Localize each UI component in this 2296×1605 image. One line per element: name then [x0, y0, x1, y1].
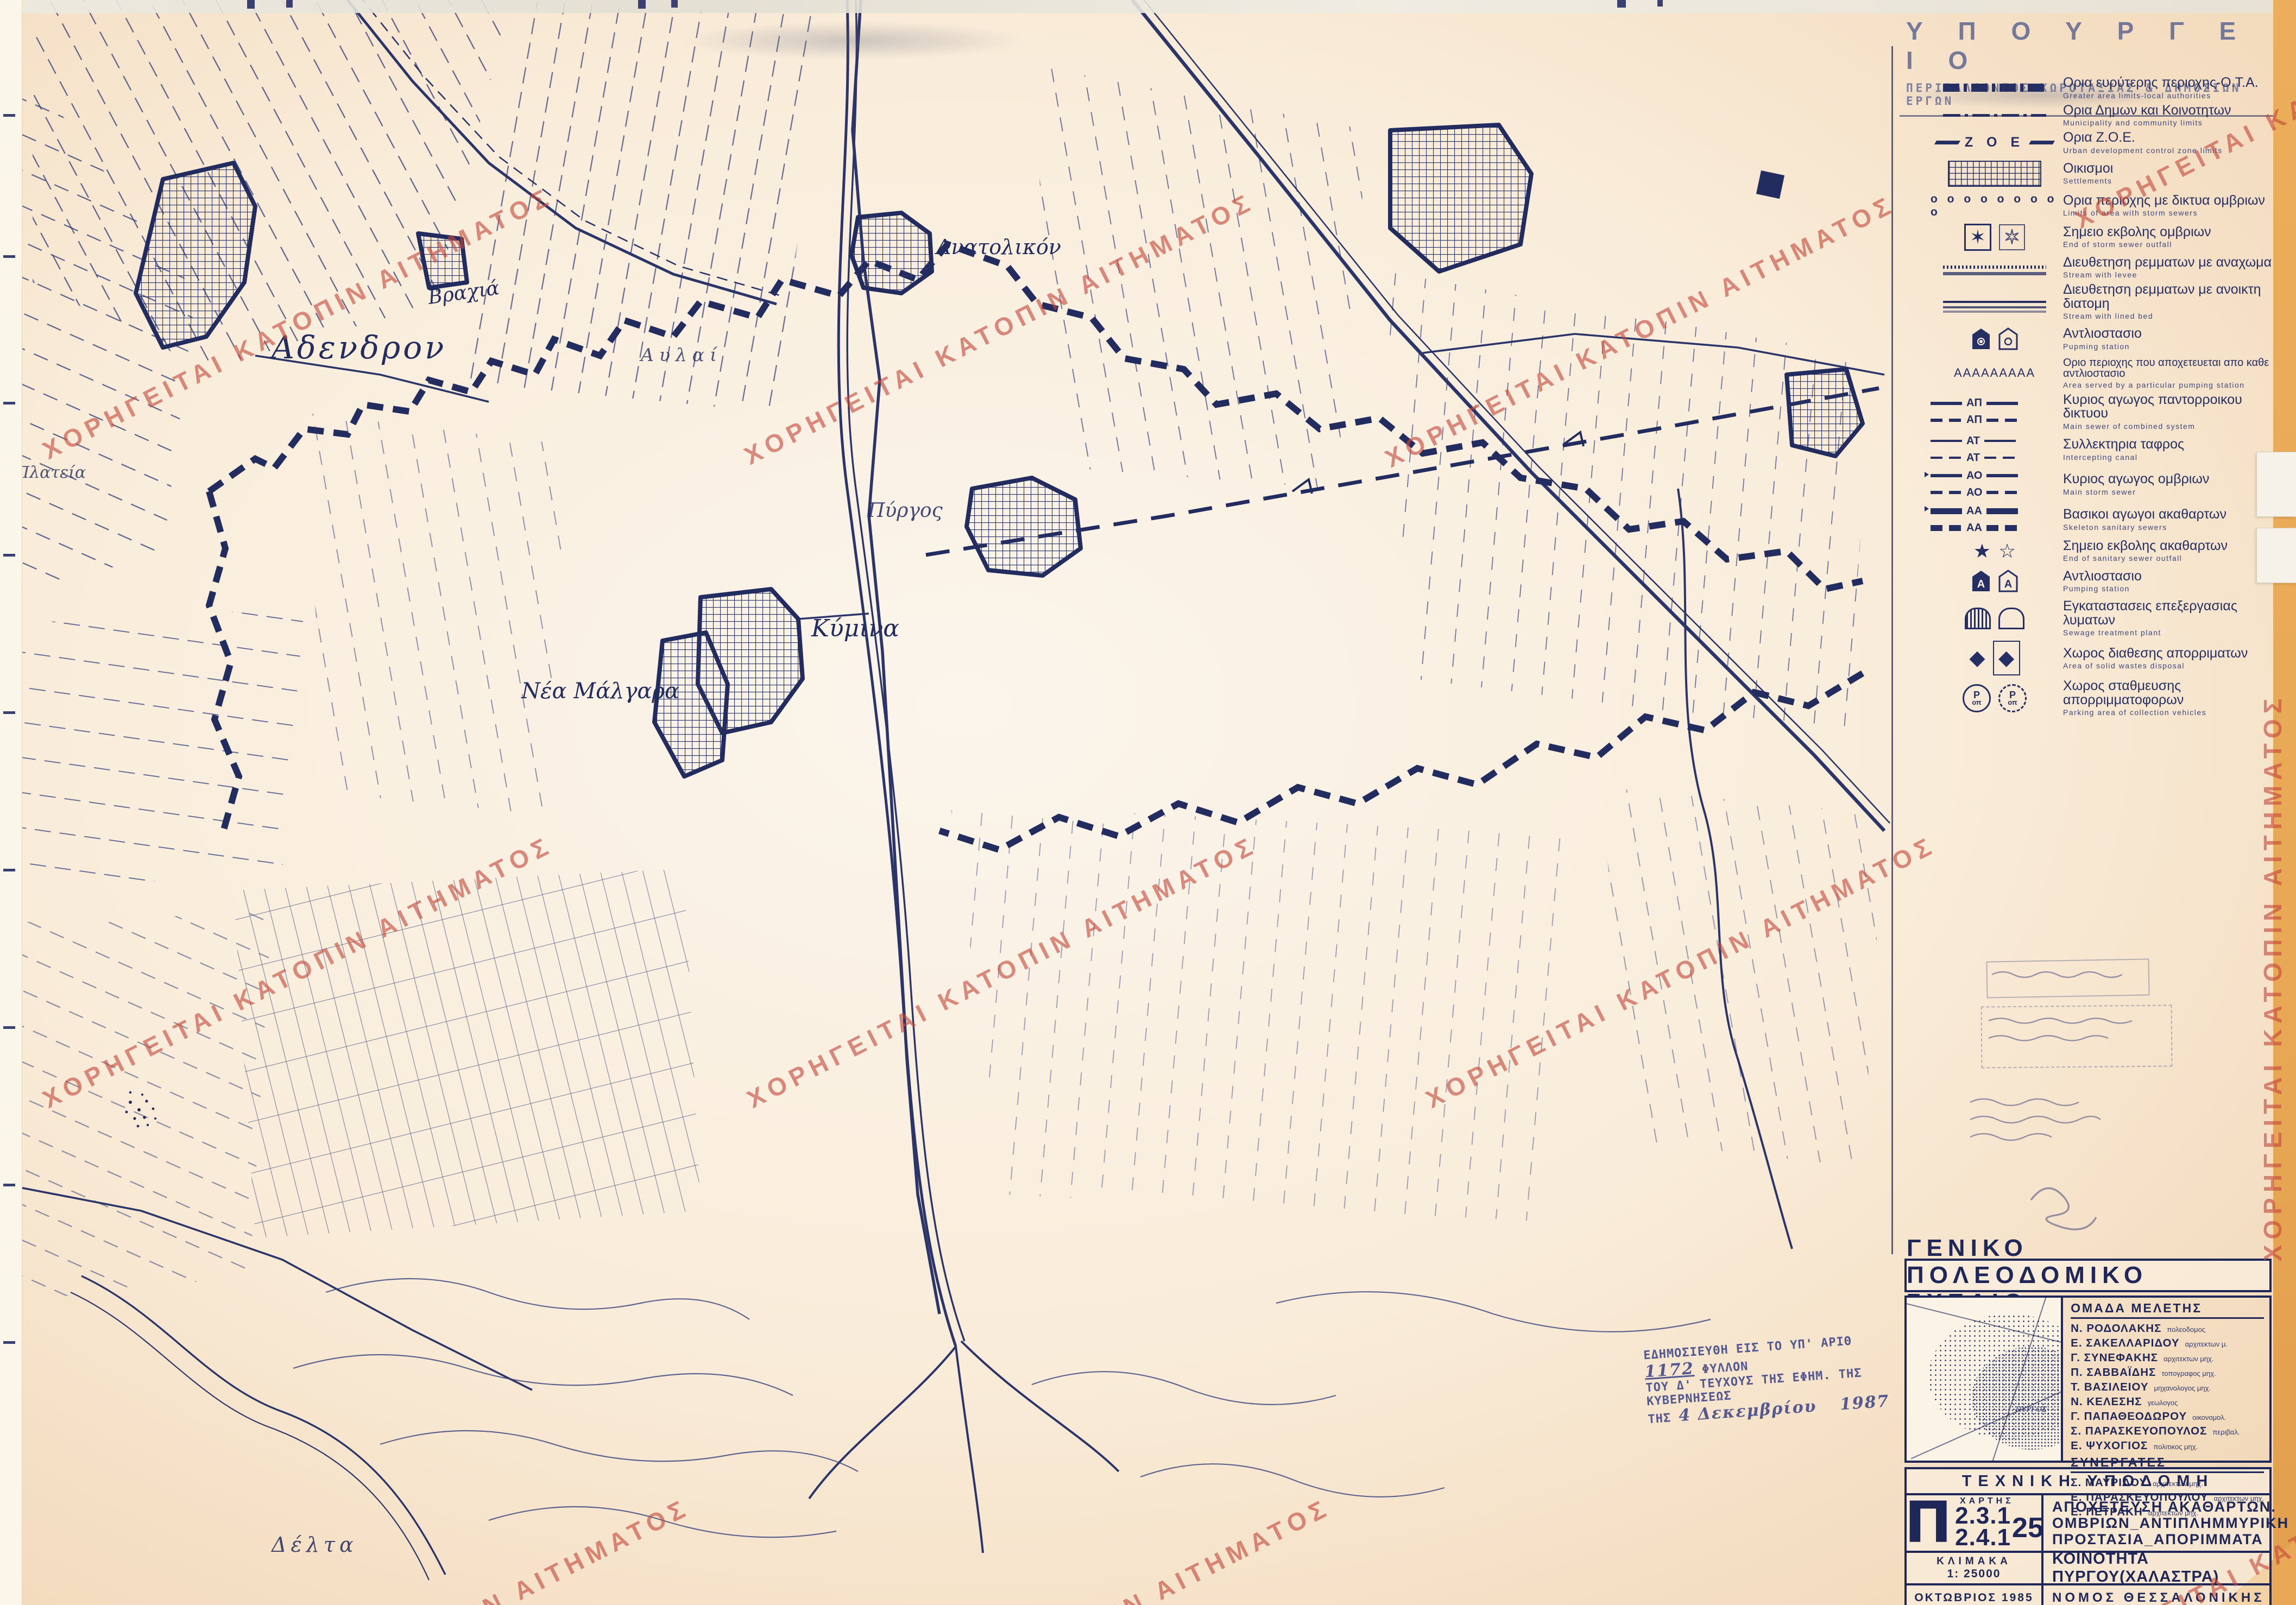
pump-service-area-symbol: ΑΑΑΑΑΑΑΑΑ: [1931, 366, 2059, 380]
legend-item: Ροπ Ροπ Χωρος σταθμευσης απορριμματοφορω…: [1931, 679, 2278, 717]
margin-tick: [3, 554, 15, 557]
legend-sublabel: Pumping station: [2063, 584, 2278, 593]
scan-left-margin: [0, 0, 22, 1605]
binding-mark: [1657, 0, 1663, 7]
team-member: Γ. ΣΥΝΕΦΑΚΗΣαρχιτεκτων μηχ.: [2071, 1351, 2264, 1364]
watermark-text: ΧΟΡΗΓΕΙΤΑΙ ΚΑΤΟΠΙΝ ΑΙΤΗΜΑΤΟΣ: [2258, 693, 2287, 1262]
combined-sewer-symbol: ΑΠ ΑΠ: [1931, 397, 2059, 426]
pumping-station-symbol: [1931, 327, 2059, 350]
margin-tick: [3, 1341, 15, 1344]
subject-cell: ΑΠΟΧΕΤΕΥΣΗ ΑΚΑΘΑΡΤΩΝ. ΟΜΒΡΙΩΝ_ΑΝΤΙΠΛΗΜΜΥ…: [2043, 1495, 2289, 1551]
legend-label: Χωρος σταθμευσης απορριμματοφορων: [2063, 679, 2278, 707]
legend-sublabel: Intercepting canal: [2063, 453, 2278, 462]
legend-sublabel: End of storm sewer outfall: [2063, 240, 2278, 249]
team-header: ΟΜΑΔΑ ΜΕΛΕΤΗΣ: [2071, 1301, 2264, 1319]
storm-sewer-area-symbol: o o o o o o o o o: [1931, 193, 2059, 219]
map-label-nea-malgara: Νέα Μάλγαρα: [521, 679, 679, 704]
scanned-map-sheet: Αδενδρον Αυλαί Βραχιά Ανατολικόν Πύργος …: [0, 0, 2296, 1605]
legend-item: A A Αντλιοστασιο Pumping station: [1931, 566, 2278, 596]
settlements-symbol: [1931, 161, 2059, 187]
pumping-station-a-symbol: A A: [1931, 570, 2059, 592]
legend-label: Χωρος διαθεσης απορριματων: [2063, 647, 2278, 661]
plate-row: ΧΑΡΤΗΣ Π 2.3.12.4.1 25 ΑΠΟΧΕΤΕΥΣΗ ΑΚΑΘΑΡ…: [1904, 1495, 2272, 1553]
diamond-boxed-icon: ◆: [1998, 648, 2014, 668]
map-label-plateia: Πλατεία: [15, 463, 86, 482]
zoe-code: Z O E: [1965, 135, 2024, 150]
scale-label: ΚΛΙΜΑΚΑ: [1937, 1556, 2011, 1568]
legend-sublabel: Parking area of collection vehicles: [2063, 708, 2278, 717]
subject-line: ΟΜΒΡΙΩΝ_ΑΝΤΙΠΛΗΜΜΥΡΙΚΗ: [2052, 1515, 2289, 1531]
margin-tick: [3, 711, 15, 714]
legend-divider-line: [1891, 46, 1893, 1254]
stream-levee-symbol: [1931, 266, 2059, 269]
legend-sublabel: Stream with levee: [2063, 270, 2278, 279]
at-code: ΑΤ: [1966, 452, 1980, 464]
pump-house-outline-icon: [1998, 327, 2018, 350]
main-storm-sewer-symbol: ΑΟ ΑΟ: [1931, 470, 2059, 499]
six-point-star-outline-icon: ✶: [2004, 228, 2020, 247]
team-member: Γ. ΠΑΠΑΘΕΟΔΩΡΟΥοικονομολ.: [2071, 1410, 2264, 1423]
intercepting-canal-symbol: ΑΤ ΑΤ: [1931, 435, 2059, 464]
subject-line: ΠΡΟΣΤΑΣΙΑ_ΑΠΟΡΙΜΜΑΤΑ: [2052, 1531, 2289, 1547]
legend-item: Οικισμοι Settlements: [1931, 159, 2278, 189]
legend-item: ΑΑ ΑΑ Βασικοι αγωγοι ακαθαρτων Skeleton …: [1931, 504, 2278, 535]
collaborators-header: ΣΥΝΕΡΓΑΤΕΣ: [2071, 1455, 2264, 1473]
ao-code: ΑΟ: [1966, 486, 1982, 499]
waste-disposal-symbol: ◆ ◆: [1931, 641, 2059, 675]
plate-suffix: 25: [2012, 1512, 2043, 1544]
legend-sublabel: Pupming station: [2063, 342, 2278, 351]
storm-outfall-symbol: ✶ ✶: [1931, 224, 2059, 251]
team-member: Τ. ΒΑΣΙΛΕΙΟΥμηχανολογος μηχ.: [2071, 1381, 2264, 1394]
margin-tick: [3, 869, 15, 871]
diamond-icon: ◆: [1969, 648, 1985, 668]
legend-label: Αντλιοστασιο: [2063, 570, 2278, 584]
vehicle-parking-symbol: Ροπ Ροπ: [1931, 684, 2059, 712]
aa-code: ΑΑ: [1966, 522, 1982, 534]
legend-label: Διευθετηση ρεμματων με αναχωμα: [2063, 256, 2278, 270]
plate-letter: Π: [1904, 1501, 1952, 1545]
legend-item: ΑΟ ΑΟ Κυριος αγωγος ομβριων Main storm s…: [1931, 469, 2278, 500]
legend-label: Οριο περιοχης που αποχετευεται απο καθε …: [2063, 357, 2278, 380]
parking-op: οπ: [2008, 699, 2017, 705]
study-team-panel: ΟΜΑΔΑ ΜΕΛΕΤΗΣ Ν. ΡΟΔΟΛΑΚΗΣπολεοδομος Ε. …: [2063, 1296, 2272, 1463]
legend-label: Ορια ευρύτερης περιοχης-Ο.Τ.Α.: [2063, 76, 2278, 90]
legend-label: Αντλιοστασιο: [2063, 327, 2278, 341]
team-member: Ν. ΡΟΔΟΛΑΚΗΣπολεοδομος: [2071, 1322, 2264, 1335]
chartis-label: ΧΑΡΤΗΣ: [1960, 1496, 2014, 1506]
team-member: Σ. ΠΑΡΑΣΚΕΥΟΠΟΥΛΟΣπεριβαλ.: [2071, 1425, 2264, 1438]
team-member: Ε. ΣΑΚΕΛΛΑΡΙΔΟΥαρχιτεκτων μ.: [2071, 1337, 2264, 1350]
parking-op: οπ: [1972, 699, 1982, 705]
plate-number-cell: ΧΑΡΤΗΣ Π 2.3.12.4.1 25: [1907, 1495, 2043, 1551]
legend-label: Διευθετηση ρεμματων με ανοικτη διατομη: [2063, 283, 2278, 311]
team-member: Π. ΣΑΒΒΑΪΔΗΣτοπογραφος μηχ.: [2071, 1366, 2264, 1379]
stamp-line3: ΤΗΣ: [1648, 1411, 1671, 1426]
faded-stamp-box: [1981, 1004, 2173, 1068]
plan-title: ΓΕΝΙΚΟ ΠΟΛΕΟΔΟΜΙΚΟ ΣΧΕΔΙΟ: [1904, 1259, 2272, 1292]
binding-mark: [671, 0, 678, 8]
legend-label: Συλλεκτηρια ταφρος: [2063, 438, 2278, 452]
legend-sublabel: End of sanitary sewer outfall: [2063, 554, 2278, 563]
sanitary-sewer-symbol: ΑΑ ΑΑ: [1931, 505, 2059, 534]
margin-tick: [3, 255, 15, 258]
stream-lined-bed-symbol: [1931, 301, 2059, 303]
legend-sublabel: Sewage treatment plant: [2063, 628, 2278, 637]
legend-sublabel: Area of solid wastes disposal: [2063, 661, 2278, 670]
margin-tick: [3, 402, 15, 405]
legend-item: ΑΠ ΑΠ Κυριος αγωγος παντορροικου δικτυου…: [1931, 393, 2278, 431]
legend-sublabel: Skeleton sanitary sewers: [2063, 523, 2278, 532]
legend-item: Διευθετηση ρεμματων με ανοικτη διατομη S…: [1931, 283, 2278, 320]
zoe-limits-symbol: Z O E: [1931, 135, 2059, 150]
legend-item: ΑΑΑΑΑΑΑΑΑ Οριο περιοχης που αποχετευεται…: [1931, 357, 2278, 389]
treatment-plant-symbol: [1931, 608, 2059, 629]
binding-mark: [1617, 0, 1626, 8]
legend-label: Κυριος αγωγος ομβριων: [2063, 472, 2278, 486]
faded-stamp-box: [1986, 958, 2149, 998]
legend-label: Κυριος αγωγος παντορροικου δικτυου: [2063, 393, 2278, 421]
legend-label: Ορια Δημων και Κοινοτητων: [2063, 104, 2278, 118]
legend-label: Βασικοι αγωγοι ακαθαρτων: [2063, 508, 2278, 522]
pump-house-a-icon: A: [1971, 570, 1991, 592]
legend-item: ΑΤ ΑΤ Συλλεκτηρια ταφρος Intercepting ca…: [1931, 434, 2278, 465]
star-outline-icon: ☆: [1998, 541, 2016, 561]
team-member: Ν. ΚΕΛΕΣΗΣγεωλογος: [2071, 1395, 2264, 1408]
sanitary-outfall-symbol: ★ ☆: [1931, 541, 2059, 561]
title-block: ΓΕΝΙΚΟ ΠΟΛΕΟΔΟΜΙΚΟ ΣΧΕΔΙΟ ΠΥΡΓΟΣ ΟΜΑΔΑ Μ…: [1904, 1259, 2272, 1605]
svg-text:A: A: [2004, 578, 2012, 590]
map-legend: Ορια ευρύτερης περιοχης-Ο.Τ.Α. Greater a…: [1931, 76, 2278, 717]
legend-item: ✶ ✶ Σημειο εκβολης ομβριων End of storm …: [1931, 223, 2278, 252]
margin-tick: [3, 1026, 15, 1029]
team-member: Ε. ΨΥΧΟΓΙΟΣπολιτικος μηχ.: [2071, 1439, 2264, 1452]
inset-pyrgos-label: ΠΥΡΓΟΣ: [2016, 1406, 2047, 1414]
stamp-line1b: ΦΥΛΛΟΝ: [1701, 1360, 1749, 1376]
stamp-year: 1987: [1839, 1392, 1890, 1414]
map-label-delta: Δέλτα: [270, 1533, 358, 1557]
at-code: ΑΤ: [1966, 435, 1980, 447]
legend-item: ◆ ◆ Χωρος διαθεσης απορριματων Area of s…: [1931, 641, 2278, 675]
legend-item: Εγκαταστασεις επεξεργασιας λυματων Sewag…: [1931, 599, 2278, 637]
scale-value: 1: 25000: [1947, 1568, 2001, 1581]
scale-cell: ΚΛΙΜΑΚΑ 1: 25000: [1907, 1553, 2043, 1583]
legend-item: Ορια Δημων και Κοινοτητων Municipality a…: [1931, 104, 2278, 128]
star-icon: ★: [1973, 541, 1991, 561]
scan-top-edge: [0, 0, 2296, 13]
legend-sublabel: Stream with lined bed: [2063, 312, 2278, 320]
legend-sublabel: Main storm sewer: [2063, 488, 2278, 496]
ministry-title: Υ Π Ο Υ Ρ Γ Ε Ι Ο: [1906, 16, 2275, 75]
legend-sublabel: Main sewer of combined system: [2063, 422, 2278, 431]
binding-mark: [247, 0, 255, 9]
legend-item: Αντλιοστασιο Pupming station: [1931, 324, 2278, 353]
legend-sublabel: Area served by a particular pumping stat…: [2063, 381, 2278, 389]
svg-text:A: A: [1977, 578, 1985, 590]
municipality-limits-symbol: [1931, 114, 2059, 117]
legend-label: Εγκαταστασεις επεξεργασιας λυματων: [2063, 599, 2278, 627]
ap-code: ΑΠ: [1966, 414, 1982, 426]
map-label-kymina: Κύμινα: [811, 615, 899, 642]
greater-area-limits-symbol: [1931, 84, 2059, 92]
pump-house-a-outline-icon: A: [1998, 570, 2018, 592]
legend-label: Σημειο εκβολης ακαθαρτων: [2063, 539, 2278, 553]
margin-tick: [3, 1184, 15, 1186]
date-cell: ΟΚΤΩΒΡΙΟΣ 1985: [1907, 1585, 2043, 1605]
binding-mark: [286, 0, 293, 8]
pencil-smudge: [679, 22, 1026, 60]
margin-tick: [3, 114, 15, 117]
legend-item: ★ ☆ Σημειο εκβολης ακαθαρτων End of sani…: [1931, 539, 2278, 563]
key-map-inset: ΠΥΡΓΟΣ: [1904, 1296, 2063, 1463]
plate-num-2: 2.4.1: [1955, 1527, 2011, 1549]
six-point-star-icon: ✶: [1970, 228, 1986, 247]
map-label-avlai: Αυλαί: [639, 344, 722, 365]
plate-num-1: 2.3.1: [1955, 1505, 2011, 1527]
pump-house-icon: [1971, 327, 1991, 350]
map-label-anatolikon: Ανατολικόν: [935, 235, 1061, 259]
ap-code: ΑΠ: [1966, 397, 1982, 409]
subject-line: ΑΠΟΧΕΤΕΥΣΗ ΑΚΑΘΑΡΤΩΝ.: [2052, 1499, 2289, 1515]
legend-item: Ορια ευρύτερης περιοχης-Ο.Τ.Α. Greater a…: [1931, 76, 2278, 100]
map-label-pyrgos: Πύργος: [867, 500, 943, 522]
aa-code: ΑΑ: [1966, 505, 1982, 517]
binding-mark: [638, 0, 646, 9]
ao-code: ΑΟ: [1966, 470, 1982, 482]
legend-item: Διευθετηση ρεμματων με αναχωμα Stream wi…: [1931, 256, 2278, 280]
legend-sublabel: Greater area limits-local authorities: [2063, 91, 2278, 100]
